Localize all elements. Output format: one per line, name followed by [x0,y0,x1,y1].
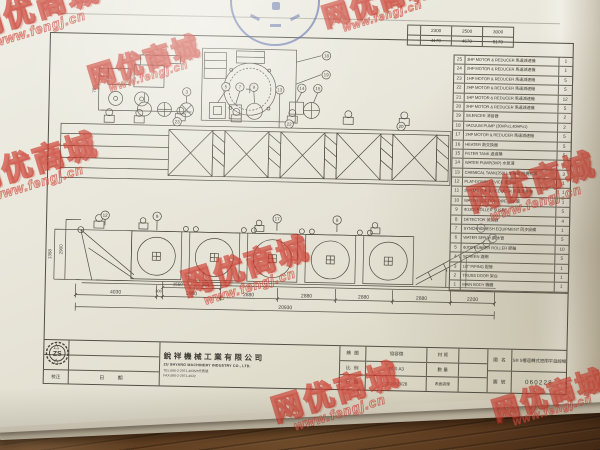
part-qty: 1 [555,283,568,292]
drawing-name-label: 圖 名 [488,349,512,370]
callout-bubbles [101,47,501,243]
dim-chain-6: 2880 [416,296,427,302]
scale-label: 比 例 [340,361,366,375]
part-number: 15 [452,149,463,158]
part-qty: 1 [559,58,572,67]
part-qty: 5 [558,133,571,142]
spec-cell: 4670 [452,36,483,46]
qty-label: 數 量 [427,363,459,377]
company-logo: ZS [44,340,71,367]
part-qty: 5 [556,208,569,217]
callout-numbers: 18 19 3 5 7 9 13 14 15 23 22 20 9 12 17 … [102,49,498,241]
part-number: 24 [454,65,465,74]
revision-note [69,355,160,371]
part-qty: 5 [559,76,572,85]
dim-height-outer: 1358 [47,248,52,259]
discharge-chute [80,230,135,281]
dim-chain-7: 2200 [467,297,478,303]
part-number: 6 [451,234,462,243]
tank-units [131,231,414,285]
part-number: 16 [453,140,464,149]
part-number: 8 [451,215,462,224]
revise-label: 校正 [44,370,69,385]
svg-text:12: 12 [103,213,109,218]
detail-pump-assembly [97,54,192,112]
part-qty: 12 [559,95,572,104]
dim-chain-2: 2880 [186,291,197,297]
part-qty: 5 [557,152,570,161]
qty-value [459,363,487,377]
part-number: 12 [452,178,463,187]
svg-text:15: 15 [315,86,321,91]
part-number: 19 [453,112,464,121]
drafter-label: 繪 圖 [340,346,366,360]
part-number: 5 [450,243,461,252]
part-qty: 5 [557,161,570,170]
part-qty: 5 [555,255,568,264]
top-rollers [139,218,380,236]
part-qty: 1 [559,67,572,76]
part-number: 23 [454,74,465,83]
part-number: 10 [451,196,462,205]
photo-scene: 18 19 3 5 7 9 13 14 15 23 22 20 9 12 17 … [0,0,600,450]
drawing-number-value: 060228 [512,372,566,394]
part-number: 18 [453,121,464,130]
part-number: 21 [454,93,465,102]
part-number: 9 [451,206,462,215]
part-number: 3 [450,262,461,271]
part-qty: 1 [555,274,568,283]
part-number: 17 [453,131,464,140]
dim-height-inner: 2900 [58,244,63,255]
part-description: MAIN BODY 機體 [461,281,555,291]
revise-date-label: 日 期 [69,370,160,386]
part-qty: 1 [555,264,568,273]
part-qty: 1 [556,227,569,236]
spec-cell: 4170 [421,36,452,46]
material-value [459,349,487,363]
svg-text:23: 23 [175,119,181,124]
part-number: 13 [452,168,463,177]
svg-text:ZS: ZS [53,351,62,358]
drawing-sheet-frame: 18 19 3 5 7 9 13 14 15 23 22 20 9 12 17 … [43,32,574,395]
dim-detail: 750 [92,85,97,93]
parts-list-table: 25 3HP MOTOR & REDUCER 馬達減速機 1 24 2HP MO… [449,54,574,293]
dim-chain-4: 2880 [301,293,312,299]
drawing-number-label: 圖 號 [488,371,512,392]
part-number: 22 [454,84,465,93]
drawing-name-value: SR 5槽迴轉式密閉平迴線機 [512,350,566,372]
part-qty: 2 [558,123,571,132]
spec-label-cell [408,35,421,44]
part-qty: 10 [555,245,568,254]
dim-total: 20930 [278,305,292,311]
part-qty: 4 [556,217,569,226]
drafting-info: 繪 圖 協容德 比 例 1/80 A3 日 期 2006/03/28 [340,346,428,391]
dim-chain-1: 300 [155,289,161,293]
svg-text:19: 19 [324,72,330,77]
part-qty: 2 [558,114,571,123]
spec-cell: 2500 [452,26,483,36]
part-qty: 5 [556,236,569,245]
part-qty: 3 [557,170,570,179]
spec-label-cell [408,26,421,35]
part-number: 2 [450,271,461,280]
part-qty: 1 [557,180,570,189]
part-qty: 5 [558,142,571,151]
drawing-id-block: 圖 名 SR 5槽迴轉式密閉平迴線機 圖 號 060228 [488,349,567,394]
dim-sub-1: 1330 [202,282,213,287]
dim-sub-0: 1550 [173,282,184,287]
part-qty: 1 [557,189,570,198]
date-value: 2006/03/28 [366,376,426,391]
material-info: 材 質 數 量 表面處理 [427,348,489,392]
material-label: 材 質 [427,348,459,362]
part-qty: 5 [558,105,571,114]
parts-row: 1 MAIN BODY 機體 1 [450,281,568,293]
part-number: 7 [451,224,462,233]
part-number: 14 [452,159,463,168]
spec-cell: 3000 [483,27,513,37]
spec-table: 2300 2500 3000 4170 4670 5170 [407,24,514,47]
svg-text:20: 20 [399,124,405,129]
svg-text:13: 13 [277,87,283,92]
drafter-value: 協容德 [366,347,426,362]
elevation-baseline [76,280,496,292]
dim-chain-3: 2880 [243,292,254,298]
dim-chain-5: 2880 [358,295,369,301]
svg-text:14: 14 [299,86,305,91]
surface-label: 表面處理 [427,377,459,391]
svg-text:22: 22 [287,122,293,127]
part-number: 25 [454,55,465,64]
scale-value: 1/80 A3 [366,361,426,376]
svg-text:17: 17 [275,216,281,221]
surface-value [459,378,487,392]
part-qty: 1 [556,199,569,208]
spec-cell: 5170 [483,37,513,47]
revision-note [69,340,160,356]
part-number: 11 [452,187,463,196]
company-block: ZS 銳祥機械工業有限公司 ZU SHYANG MACHINERY INDUST… [160,342,341,389]
part-number: 1 [450,281,461,290]
part-qty: 5 [559,86,572,95]
spec-cell: 2300 [421,26,452,36]
part-number: 20 [453,102,464,111]
date-label: 日 期 [340,375,366,389]
part-number: 4 [450,253,461,262]
dim-chain-0: 4030 [110,289,121,295]
svg-text:18: 18 [324,53,330,58]
